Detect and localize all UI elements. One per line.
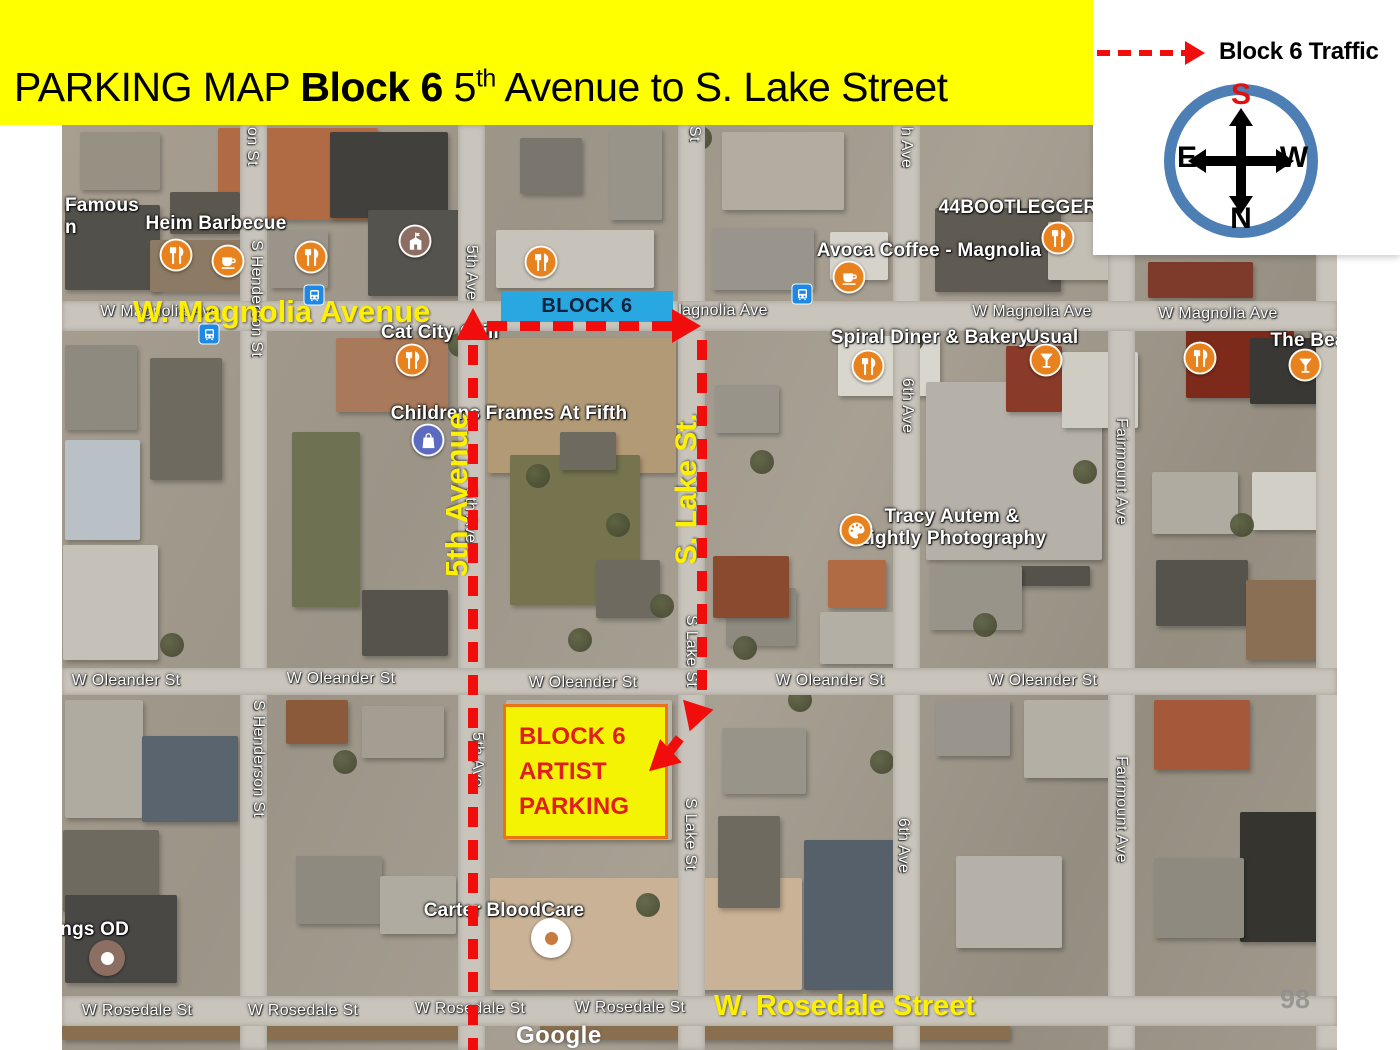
blood-center-icon	[531, 918, 571, 958]
compass-rose: S N E W	[1164, 84, 1318, 238]
compass-horizontal-bar	[1204, 156, 1278, 166]
map-building	[80, 132, 160, 190]
map-tree	[973, 613, 997, 637]
title-banner: PARKING MAP Block 6 5th Avenue to S. Lak…	[0, 0, 1093, 125]
coffee-icon	[212, 245, 245, 278]
street-name-label: W Rosedale St	[82, 1002, 193, 1020]
street-name-label: W Rosedale St	[248, 1002, 359, 1020]
map-building	[828, 560, 886, 608]
artist-parking-line: PARKING	[519, 789, 665, 824]
poi-label: Spiral Diner & Bakery	[831, 327, 1030, 349]
map-tree	[650, 594, 674, 618]
map-tree	[568, 628, 592, 652]
page-number: 98	[1280, 984, 1310, 1015]
map-tree	[733, 636, 757, 660]
map-building	[1154, 858, 1244, 938]
route-magnolia-line	[487, 321, 672, 331]
school-icon	[399, 225, 432, 258]
street-name-label: W Rosedale St	[575, 999, 686, 1017]
map-building	[712, 228, 814, 290]
map-building	[65, 440, 140, 540]
map-building	[63, 545, 158, 660]
map-building	[330, 132, 448, 218]
restaurant-icon	[525, 246, 558, 279]
map-tree	[1230, 513, 1254, 537]
bar-icon	[1030, 344, 1063, 377]
street-name-label: 5th Ave	[462, 245, 480, 300]
restaurant-icon	[295, 241, 328, 274]
map-building	[286, 700, 348, 744]
map-tree	[526, 464, 550, 488]
poi-label: 44BOOTLEGGER	[939, 197, 1098, 219]
map-building	[520, 138, 582, 194]
magnolia-avenue-overlay: W. Magnolia Avenue	[133, 294, 430, 330]
map-tree	[636, 893, 660, 917]
street-name-label: S Lake St	[681, 798, 699, 870]
compass-north-label: N	[1226, 202, 1256, 236]
route-arrow-right-icon	[672, 309, 701, 343]
legend-panel: Block 6 Traffic S N E W	[1093, 0, 1400, 255]
map-street-vertical	[893, 125, 920, 1050]
map-building	[936, 700, 1010, 756]
restaurant-icon	[396, 344, 429, 377]
map-building	[820, 612, 894, 664]
map-building	[65, 345, 137, 430]
street-name-label: W Oleander St	[989, 672, 1098, 690]
optometrist-icon	[89, 940, 125, 976]
map-tree	[1073, 460, 1097, 484]
rosedale-street-overlay: W. Rosedale Street	[714, 990, 975, 1023]
map-building	[540, 1024, 1010, 1040]
map-building	[1024, 700, 1118, 778]
street-name-label: Fairmount Ave	[1112, 756, 1130, 863]
bus-stop-icon	[792, 284, 813, 305]
art-gallery-icon	[840, 514, 873, 547]
street-name-label: St	[685, 126, 703, 142]
map-building	[718, 816, 780, 908]
compass-south-label: S	[1226, 78, 1256, 112]
street-name-label: 6th Ave	[898, 378, 916, 433]
poi-label: Childrens Frames At Fifth	[391, 403, 628, 425]
map-building	[362, 706, 444, 758]
traffic-arrow-icon	[1097, 50, 1185, 56]
compass-west-label: W	[1279, 141, 1309, 175]
poi-label: Avoca Coffee - Magnolia	[817, 240, 1042, 262]
map-building	[1152, 472, 1238, 534]
map-building	[142, 736, 238, 822]
map-building	[292, 432, 360, 607]
street-name-label: W Oleander St	[776, 672, 885, 690]
map-building	[1154, 700, 1250, 770]
coffee-icon	[833, 261, 866, 294]
street-name-label: W Magnolia Ave	[1158, 305, 1278, 323]
map-tree	[870, 750, 894, 774]
artist-parking-line: BLOCK 6	[519, 719, 665, 754]
street-name-label: S Henderson St	[249, 700, 267, 817]
bar-icon	[1289, 349, 1322, 382]
map-tree	[750, 450, 774, 474]
map-building	[610, 128, 662, 220]
restaurant-icon	[1184, 342, 1217, 375]
map-building	[1148, 262, 1253, 298]
route-s-lake-line	[697, 340, 707, 702]
restaurant-icon	[160, 239, 193, 272]
map-building	[715, 385, 779, 433]
map-building	[1156, 560, 1248, 626]
map-street-vertical	[1108, 125, 1135, 1050]
restaurant-icon	[1042, 222, 1075, 255]
block6-street-badge: BLOCK 6	[501, 291, 673, 322]
artist-parking-box: BLOCK 6ARTISTPARKING	[503, 704, 668, 839]
street-name-label: W Oleander St	[287, 670, 396, 688]
map-tree	[333, 750, 357, 774]
map-building	[496, 230, 654, 288]
poi-label: Carter BloodCare	[424, 900, 585, 922]
street-name-label: W Magnolia Ave	[972, 303, 1092, 321]
left-margin	[0, 0, 62, 1050]
map-building	[362, 590, 448, 656]
google-watermark: Google	[516, 1022, 602, 1050]
poi-label: Famousn	[65, 195, 139, 239]
compass-east-label: E	[1172, 141, 1202, 175]
poi-dot	[101, 952, 114, 965]
street-name-label: Fairmount Ave	[1112, 418, 1130, 525]
restaurant-icon	[852, 350, 885, 383]
street-name-label: 6th Ave	[894, 818, 912, 873]
map-building	[336, 338, 448, 412]
map-tree	[160, 633, 184, 657]
street-name-label: W Oleander St	[529, 674, 638, 692]
legend-label: Block 6 Traffic	[1219, 38, 1379, 66]
street-name-label: W Oleander St	[72, 672, 181, 690]
traffic-arrowhead-icon	[1185, 41, 1205, 65]
map-building	[722, 728, 806, 794]
poi-label: Tracy Autem &Lightly Photography	[858, 506, 1047, 550]
route-5th-ave-line	[468, 345, 478, 1050]
poi-label: Heim Barbecue	[146, 213, 287, 235]
poi-dot	[545, 932, 558, 945]
map-tree	[606, 513, 630, 537]
parking-map-slide: W Magnolia Avelagnolia AveW Magnolia Ave…	[0, 0, 1400, 1050]
map-building	[722, 132, 844, 210]
map-building	[560, 432, 616, 470]
page-title: PARKING MAP Block 6 5th Avenue to S. Lak…	[14, 64, 948, 111]
street-name-label: on St	[243, 127, 261, 166]
street-name-label: h Ave	[897, 127, 915, 168]
map-building	[956, 856, 1062, 948]
map-building	[713, 556, 789, 618]
map-building	[150, 358, 222, 480]
map-building	[65, 700, 143, 818]
route-arrow-up-icon	[456, 308, 490, 340]
map-building	[296, 856, 382, 924]
